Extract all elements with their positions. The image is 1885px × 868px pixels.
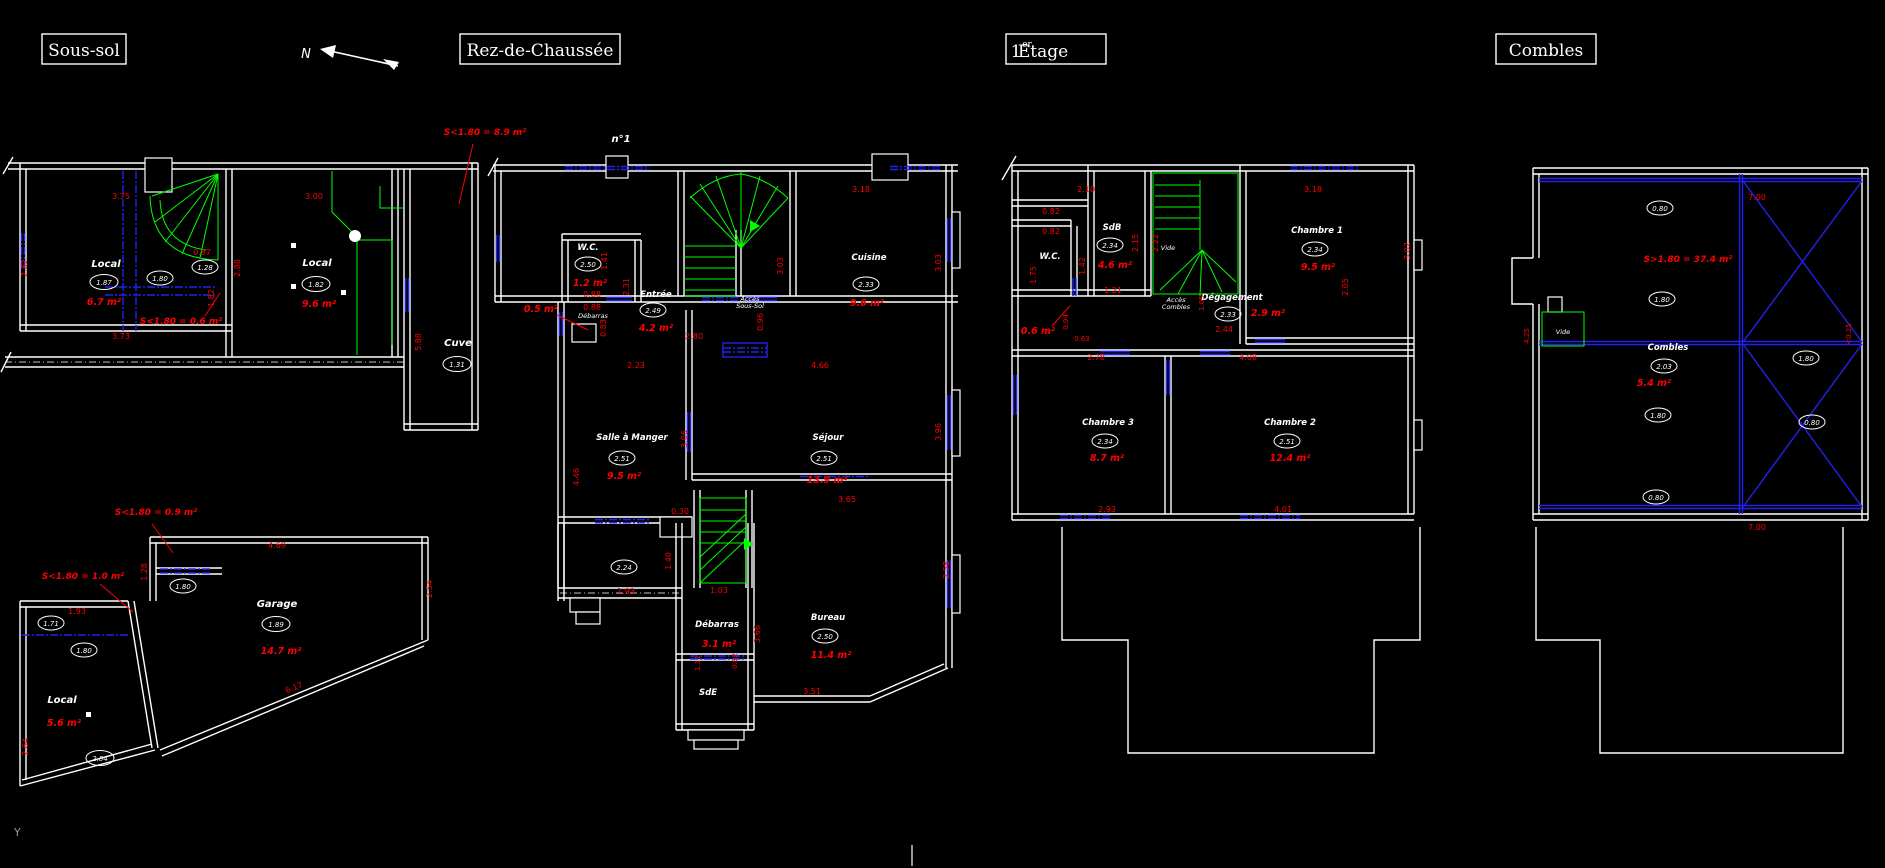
dimension: 3.00 [305, 192, 323, 201]
dimension: <0.25 [1845, 323, 1853, 344]
dimension: 0.63 [1074, 335, 1090, 343]
dimension: 4.66 [811, 361, 829, 370]
dimension: 1.03 [710, 586, 728, 595]
dimension: 0.82 [731, 653, 739, 669]
room-area: 13.9 m² [807, 475, 849, 486]
dimension: 0.88 [583, 290, 601, 299]
svg-text:2.49: 2.49 [645, 307, 661, 315]
room-area: 9.5 m² [607, 471, 642, 482]
svg-text:1.80: 1.80 [152, 275, 168, 283]
dimension: 1.40 [664, 552, 673, 570]
room-label: Chambre 2 [1264, 418, 1316, 428]
svg-text:2.33: 2.33 [858, 281, 874, 289]
room-label: Entrée [640, 289, 672, 300]
low-height-note: S<1.80 = 8.9 m² [444, 128, 526, 138]
dimension: 1.21 [1104, 286, 1122, 295]
dimension: 4.69 [268, 541, 286, 550]
dimension: 2.10 [1077, 185, 1095, 194]
room-label: Local [302, 258, 332, 269]
room-area: 6.7 m² [87, 297, 122, 308]
dimension: 3.65 [838, 495, 856, 504]
dimension: 2.88 [233, 259, 242, 277]
room-label: Débarras [695, 619, 739, 630]
dimension: 4.46 [572, 468, 581, 486]
room-area: 11.4 m² [811, 650, 853, 661]
svg-text:1.80: 1.80 [1654, 296, 1670, 304]
svg-text:2.34: 2.34 [1102, 242, 1118, 250]
dimension: 2.93 [1098, 505, 1116, 514]
svg-text:0.80: 0.80 [1648, 494, 1664, 502]
dimension: 4.01 [1274, 505, 1292, 514]
room-label: W.C. [577, 243, 598, 253]
closet-area: 0.5 m² [524, 304, 559, 315]
room-label: Chambre 1 [1291, 226, 1343, 236]
outlet [341, 290, 346, 295]
dimension: 3.18 [852, 185, 870, 194]
dimension: 7.00 [1748, 193, 1766, 202]
svg-text:2.51: 2.51 [1279, 438, 1295, 446]
dimension: 0.96 [756, 313, 765, 331]
room-area: 12.4 m² [1270, 453, 1312, 464]
house-number: n°1 [611, 134, 630, 145]
dimension: 4.25 [1523, 328, 1531, 344]
dimension: 2.80 [685, 332, 703, 341]
dimension: 0.83 [599, 319, 608, 337]
dimension: 3.73 [112, 332, 130, 341]
svg-text:1.80: 1.80 [1798, 355, 1814, 363]
floorplan-canvas: Sous-sol Rez-de-Chaussée 1 er Etage Comb… [0, 0, 1885, 868]
dimension: 2.82 [20, 259, 29, 277]
dimension: 1.05 [1198, 295, 1206, 311]
low-height-note: S<1.80 = 1.0 m² [42, 572, 124, 582]
room-label: Bureau [811, 613, 845, 623]
page-title: Combles [1509, 41, 1583, 61]
dimension: 3.96 [934, 423, 943, 441]
dimension: 1.82 [207, 289, 216, 307]
dimension: 2.58 [942, 561, 951, 579]
svg-text:2.04: 2.04 [92, 755, 108, 763]
svg-text:2.24: 2.24 [616, 564, 632, 572]
dimension: 1.75 [1029, 266, 1038, 284]
duct [349, 230, 361, 242]
dimension: 3.06 [680, 430, 689, 448]
svg-text:1.71: 1.71 [43, 620, 59, 628]
svg-text:0.80: 0.80 [1804, 419, 1820, 427]
page-title: Sous-sol [48, 41, 120, 61]
room-area: 9.6 m² [302, 299, 337, 310]
svg-text:2.50: 2.50 [817, 633, 833, 641]
svg-text:2.34: 2.34 [1307, 246, 1323, 254]
room-area: 2.9 m² [1251, 308, 1286, 319]
room-area: 4.6 m² [1097, 260, 1133, 271]
outlet [86, 712, 91, 717]
dimension: 2.44 [1215, 325, 1233, 334]
dimension: 2.64 [21, 738, 30, 756]
dimension: 3.75 [112, 192, 130, 201]
dimension: 3.03 [934, 254, 943, 272]
room-label: W.C. [1039, 252, 1060, 262]
dimension: 2.05 [1341, 278, 1350, 296]
svg-text:1.89: 1.89 [268, 621, 284, 629]
north-label: N [301, 47, 311, 62]
room-label: Séjour [813, 432, 845, 443]
closet-label: Débarras [578, 312, 608, 320]
svg-text:1.87: 1.87 [96, 279, 112, 287]
dimension: 4.08 [1239, 353, 1257, 362]
room-label: Garage [257, 599, 298, 610]
room-area: 9.6 m² [850, 298, 885, 309]
dimension: 1.41 [600, 252, 609, 270]
dimension: 1.42 [1078, 257, 1087, 275]
dimension: 2.54 [425, 580, 434, 598]
svg-text:2.51: 2.51 [614, 455, 630, 463]
room-label: Local [47, 695, 77, 706]
room-label: Local [91, 259, 121, 270]
room-area: 5.4 m² [1637, 378, 1672, 389]
dimension: 3.03 [776, 257, 785, 275]
svg-text:2.03: 2.03 [1656, 363, 1672, 371]
low-height-note: 0.6 m² [1021, 326, 1056, 337]
room-area: 5.6 m² [47, 718, 82, 729]
title-word: Etage [1018, 42, 1068, 62]
dimension: 7.00 [1748, 523, 1766, 532]
dimension: 1.93 [617, 587, 635, 596]
svg-text:2.33: 2.33 [1220, 311, 1236, 319]
dimension: 2.31 [622, 278, 631, 296]
dimension: 2.23 [627, 361, 645, 370]
outlet [291, 243, 296, 248]
svg-text:2.51: 2.51 [816, 455, 832, 463]
dimension: 0.82 [1042, 227, 1060, 236]
svg-text:0.80: 0.80 [1652, 205, 1668, 213]
svg-text:2.34: 2.34 [1097, 438, 1113, 446]
dimension: 1.28 [140, 563, 149, 581]
outlet [291, 284, 296, 289]
stair-note: Combles [1162, 303, 1191, 311]
dimension: 0.87 [193, 248, 211, 257]
room-area: 8.7 m² [1090, 453, 1125, 464]
dimension: 0.30 [671, 507, 689, 516]
room-area: 3.1 m² [702, 639, 737, 650]
dimension: 0.82 [1042, 207, 1060, 216]
room-area: 1.2 m² [573, 278, 608, 289]
stair-note: Sous-Sol [736, 302, 764, 310]
surface-note: S>1.80 = 37.4 m² [1644, 255, 1733, 265]
dimension: 3.51 [803, 687, 821, 696]
svg-text:1.82: 1.82 [308, 281, 324, 289]
dimension: 3.02 [1403, 242, 1412, 260]
room-area: 4.2 m² [638, 323, 674, 334]
void-label: Vide [1556, 328, 1570, 336]
room-area: 9.5 m² [1301, 262, 1336, 273]
low-height-note: S<1.80 = 0.9 m² [115, 508, 197, 518]
dimension: 0.94 [1062, 314, 1070, 330]
svg-text:2.50: 2.50 [580, 261, 596, 269]
room-label: Chambre 3 [1082, 418, 1134, 428]
svg-text:1.80: 1.80 [175, 583, 191, 591]
room-label: Cuisine [852, 253, 887, 263]
svg-text:1.28: 1.28 [197, 264, 213, 272]
room-label: Cuve [444, 338, 472, 349]
void-label: Vide [1161, 244, 1175, 252]
room-label: Dégagement [1201, 292, 1263, 303]
dimension: 2.78 [1087, 353, 1105, 362]
room-label: SdB [1103, 223, 1122, 233]
ucs-y-label: Y [13, 826, 21, 839]
room-label: Combles [1648, 343, 1689, 353]
svg-text:1.80: 1.80 [1650, 412, 1666, 420]
low-height-note: S<1.80 = 0.6 m² [140, 317, 222, 327]
svg-text:1.80: 1.80 [76, 647, 92, 655]
svg-text:1.31: 1.31 [449, 361, 465, 369]
room-area: 14.7 m² [261, 646, 303, 657]
dimension: 2.15 [1131, 234, 1140, 252]
dimension: 1.93 [68, 607, 86, 616]
dimension: 1.11 [694, 655, 702, 671]
dimension: 2.22 [1151, 234, 1160, 252]
dimension: 3.18 [1304, 185, 1322, 194]
room-label: Salle à Manger [596, 433, 668, 443]
room-label: SdE [699, 688, 717, 698]
dimension: 3.66 [753, 625, 762, 643]
dimension: 0.88 [583, 303, 601, 312]
dimension: 5.88 [414, 333, 423, 351]
page-title: Rez-de-Chaussée [467, 41, 614, 61]
